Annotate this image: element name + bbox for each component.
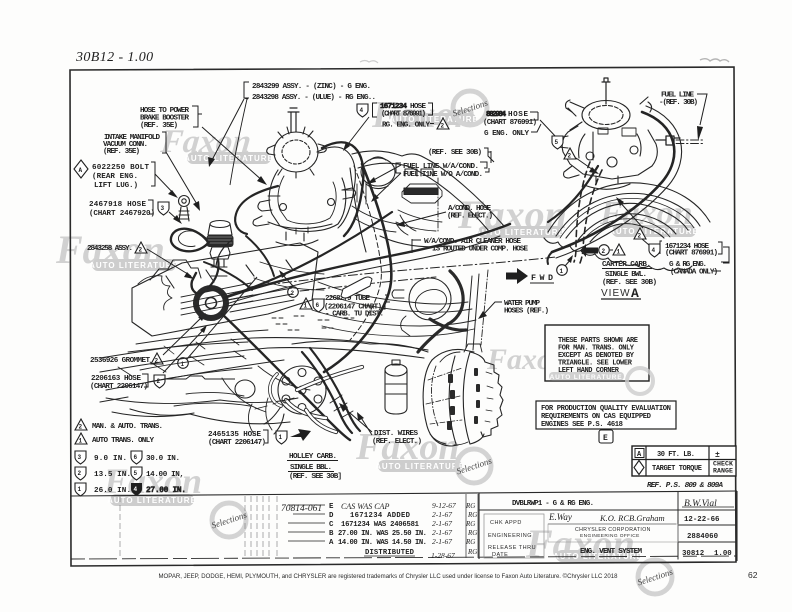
svg-text:K.O. RCB.Graham: K.O. RCB.Graham: [599, 513, 665, 523]
svg-text:1: 1: [79, 438, 83, 445]
svg-text:2465135 HOSE: 2465135 HOSE: [208, 431, 261, 439]
svg-text:(REAR ENG.: (REAR ENG.: [92, 173, 138, 181]
svg-text:2: 2: [441, 123, 445, 130]
svg-text:FUEL LINE W/A/COND.: FUEL LINE W/A/COND.: [403, 163, 479, 171]
svg-text:HOLLEY CARB.: HOLLEY CARB.: [289, 453, 337, 461]
svg-text:(REF. SEE 30B): (REF. SEE 30B): [602, 279, 657, 287]
svg-text:1.00: 1.00: [714, 550, 732, 558]
svg-text:REQUIREMENTS ON CAS EQUIPPED: REQUIREMENTS ON CAS EQUIPPED: [541, 413, 652, 421]
svg-text:4: 4: [360, 107, 364, 114]
svg-text:1: 1: [560, 268, 564, 275]
svg-text:14.00 IN,: 14.00 IN,: [146, 471, 184, 479]
svg-text:2-1-67: 2-1-67: [432, 519, 452, 528]
svg-text:ENGINES SEE P.S. 4618: ENGINES SEE P.S. 4618: [541, 421, 623, 429]
svg-text:A: A: [329, 539, 334, 547]
svg-text:2843298 ASSY. - (ULUE) - RG EN: 2843298 ASSY. - (ULUE) - RG ENG..: [252, 94, 376, 102]
svg-text:G ENG. ONLY: G ENG. ONLY: [484, 130, 529, 138]
svg-text:CHK APPD: CHK APPD: [490, 520, 522, 526]
svg-text:9-12-67: 9-12-67: [432, 501, 456, 510]
svg-text:(REF. 35E): (REF. 35E): [103, 148, 140, 156]
svg-text:3: 3: [78, 454, 82, 461]
svg-text:CHECK: CHECK: [713, 461, 733, 468]
svg-text:882984: 882984: [486, 111, 506, 119]
svg-text:2: 2: [78, 470, 82, 477]
svg-text:ENGINEERING: ENGINEERING: [488, 533, 532, 539]
svg-text:(REF. SEE 30B): (REF. SEE 30B): [428, 149, 482, 157]
svg-text:2: 2: [139, 247, 143, 254]
svg-text:RG. ENG. ONLY: RG. ENG. ONLY: [382, 122, 430, 130]
svg-text:RG: RG: [465, 502, 475, 510]
svg-text:HOSES (REF.): HOSES (REF.): [504, 308, 549, 316]
svg-text:5: 5: [134, 470, 138, 477]
svg-text:(REF. SEE 30B]: (REF. SEE 30B]: [289, 473, 342, 481]
svg-text:70814-061: 70814-061: [281, 504, 322, 514]
svg-text:DIST. WIRES: DIST. WIRES: [374, 430, 418, 438]
svg-text:2: 2: [602, 248, 606, 255]
svg-text:1: 1: [304, 303, 308, 310]
svg-text:SINGLE BWL.: SINGLE BWL.: [605, 271, 647, 279]
svg-text:4: 4: [652, 247, 656, 254]
svg-text:2: 2: [157, 378, 161, 385]
svg-text:B: B: [329, 530, 334, 538]
svg-text:2: 2: [568, 153, 572, 160]
svg-text:B.W.Vial: B.W.Vial: [684, 499, 717, 509]
svg-text:RG: RG: [467, 529, 477, 537]
svg-text:2: 2: [638, 233, 642, 240]
svg-text:2: 2: [291, 290, 295, 297]
svg-text:(CHART 876991): (CHART 876991): [483, 119, 537, 127]
svg-text:(CHART 876991): (CHART 876991): [665, 250, 718, 258]
svg-text:2206163 HOSE: 2206163 HOSE: [91, 375, 141, 383]
svg-text:2467918 HOSE: 2467918 HOSE: [89, 201, 146, 209]
svg-text:RANGE: RANGE: [713, 468, 733, 475]
svg-text:1-28-67: 1-28-67: [431, 551, 455, 560]
svg-text:14.00 IN. WAS 14.50 IN.: 14.00 IN. WAS 14.50 IN.: [338, 539, 427, 547]
svg-text:3: 3: [161, 205, 165, 212]
svg-text:CHRYSLER CORPORATION: CHRYSLER CORPORATION: [575, 527, 651, 533]
svg-text:2884060: 2884060: [687, 533, 719, 541]
svg-text:HOSE: HOSE: [508, 111, 528, 119]
svg-text:30812: 30812: [682, 550, 704, 558]
svg-text:FWD: FWD: [531, 273, 553, 283]
svg-text:DVBLRWP1 - G & RG ENG.: DVBLRWP1 - G & RG ENG.: [512, 500, 594, 508]
svg-text:DATE: DATE: [492, 552, 508, 558]
svg-text:RG: RG: [467, 548, 477, 556]
svg-text:C: C: [329, 521, 334, 529]
svg-text:30B12 - 1.00: 30B12 - 1.00: [75, 50, 154, 65]
svg-text:2-1-67: 2-1-67: [432, 537, 452, 546]
svg-text:RG: RG: [465, 538, 475, 546]
svg-text:30.0 IN.: 30.0 IN.: [146, 455, 180, 463]
svg-text:(CHART 2206147): (CHART 2206147): [208, 439, 266, 447]
svg-text:62: 62: [748, 570, 758, 580]
svg-text:E: E: [603, 434, 608, 443]
svg-text:30 FT. LB.: 30 FT. LB.: [657, 451, 695, 459]
svg-text:2: 2: [79, 424, 83, 431]
svg-text:6: 6: [316, 302, 320, 309]
svg-text:AUTO TRANS. ONLY: AUTO TRANS. ONLY: [92, 437, 154, 445]
svg-text:-(REF. 30B): -(REF. 30B): [659, 99, 698, 107]
svg-text:FOR PRODUCTION QUALITY EVALUAT: FOR PRODUCTION QUALITY EVALUATION: [541, 405, 671, 413]
svg-text:(REF. ELECT.): (REF. ELECT.): [372, 438, 422, 446]
svg-text:2843299 ASSY. - (ZINC) - G ENG: 2843299 ASSY. - (ZINC) - G ENG.: [252, 83, 371, 91]
svg-text:26.0 IN.: 26.0 IN.: [94, 487, 131, 495]
svg-text:D: D: [329, 512, 334, 520]
svg-text:- CARB. TU DIST.: - CARB. TU DIST.: [325, 311, 384, 319]
svg-text:RELEASE THRU: RELEASE THRU: [488, 545, 536, 551]
svg-text:(CHART 2467920): (CHART 2467920): [89, 210, 155, 218]
svg-text:27.00 IN.: 27.00 IN.: [146, 486, 186, 495]
svg-text:MAN. & AUTO. TRANS.: MAN. & AUTO. TRANS.: [92, 423, 163, 431]
svg-text:CAS WAS CAP: CAS WAS CAP: [341, 502, 389, 511]
svg-text:1: 1: [617, 249, 621, 256]
svg-text:LIFT LUG.): LIFT LUG.): [94, 182, 138, 190]
svg-text:6: 6: [134, 454, 138, 461]
svg-text:(CANADA ONLY): (CANADA ONLY): [670, 269, 718, 277]
svg-text:AUTO LITERATURE: AUTO LITERATURE: [550, 374, 623, 381]
svg-text:RG: RG: [465, 520, 475, 528]
svg-text:ENGINEERING OFFICE: ENGINEERING OFFICE: [580, 533, 640, 539]
svg-text:13.5 IN.: 13.5 IN.: [94, 471, 131, 479]
svg-text:5: 5: [555, 139, 559, 146]
svg-text:FUEL I1NE W/O A/COND.: FUEL I1NE W/O A/COND.: [403, 171, 483, 179]
svg-text:ENG. VENT SYSTEM: ENG. VENT SYSTEM: [580, 548, 642, 556]
svg-text:27.00 IN. WAS 25.50 IN.: 27.00 IN. WAS 25.50 IN.: [338, 530, 427, 538]
svg-text:2843258 ASSY.: 2843258 ASSY.: [87, 245, 133, 253]
svg-text:E: E: [329, 503, 334, 511]
svg-text:RG: RG: [467, 511, 477, 519]
svg-text:1: 1: [78, 486, 82, 493]
svg-text:1: 1: [279, 434, 283, 441]
svg-text:(REF. 35E): (REF. 35E): [140, 122, 178, 130]
svg-text:(CHART 876991): (CHART 876991): [381, 111, 426, 119]
svg-text:A: A: [79, 167, 83, 174]
svg-text:E.Way: E.Way: [548, 512, 572, 522]
svg-text:VIEW: VIEW: [601, 288, 631, 299]
svg-text:2-1-67: 2-1-67: [432, 510, 452, 519]
svg-text:6022250 BOLT: 6022250 BOLT: [92, 164, 149, 172]
svg-text:REF. P.S. 809 & 809A: REF. P.S. 809 & 809A: [647, 482, 723, 490]
svg-text:9.0 IN.: 9.0 IN.: [94, 455, 127, 463]
svg-text:1671234 WAS 2406581: 1671234 WAS 2406581: [341, 521, 420, 529]
svg-text:MOPAR, JEEP, DODGE, HEMI, PLYM: MOPAR, JEEP, DODGE, HEMI, PLYMOUTH, and …: [159, 572, 618, 580]
svg-text:4: 4: [134, 486, 138, 493]
svg-text:12-22-66: 12-22-66: [684, 516, 720, 524]
svg-text:SINGLE BBL.: SINGLE BBL.: [290, 464, 332, 472]
svg-text:±: ±: [715, 451, 720, 460]
svg-text:2-1-67: 2-1-67: [432, 528, 452, 537]
svg-text:(REF. ELECT.): (REF. ELECT.): [447, 213, 493, 221]
svg-text:2536926 GROMMET: 2536926 GROMMET: [90, 357, 150, 365]
svg-text:1671234 ADDED: 1671234 ADDED: [350, 512, 411, 520]
svg-text:TARGET TORQUE: TARGET TORQUE: [652, 465, 702, 473]
